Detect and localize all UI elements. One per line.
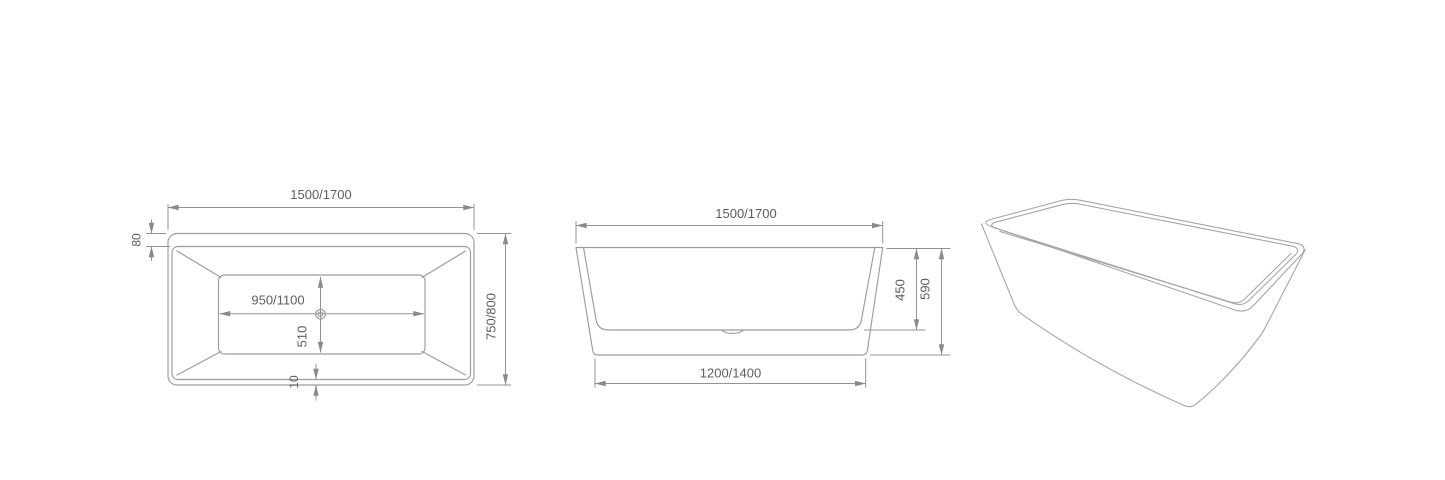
corner-slope-line (177, 352, 221, 376)
perspective-basin-opening-edge (1000, 232, 1291, 303)
dim-label-floor-length: 950/1100 (251, 293, 304, 308)
dim-label-floor-width: 510 (295, 326, 310, 348)
perspective-view (982, 199, 1306, 406)
dim-label-overall-width: 750/800 (484, 293, 499, 340)
front-view: 1500/1700 1200/1400 450 590 (576, 206, 951, 388)
bathtub-technical-drawing: 1500/1700 80 750/800 950/1100 510 10 (0, 0, 1445, 480)
top-view-basin-floor (219, 275, 426, 354)
corner-slope-line (422, 352, 466, 376)
front-view-tub-outline (576, 248, 883, 356)
corner-slope-line (177, 251, 221, 278)
dim-label-inner-depth: 450 (893, 279, 908, 301)
drawing-sheet: 1500/1700 80 750/800 950/1100 510 10 (0, 0, 1445, 480)
dim-label-overall-length: 1500/1700 (290, 187, 351, 202)
extension-lines (576, 221, 883, 244)
top-view-rim-inner-edge (172, 247, 471, 380)
extension-lines (146, 234, 170, 247)
top-view: 1500/1700 80 750/800 950/1100 510 10 (130, 187, 512, 401)
perspective-body-silhouette (982, 224, 1306, 407)
front-view-basin-inner (584, 248, 875, 331)
dim-label-back-rim: 10 (287, 375, 301, 389)
corner-slope-line (422, 251, 466, 278)
dim-label-front-rim: 80 (130, 233, 144, 247)
perspective-rim-inner (992, 203, 1298, 304)
perspective-rim-outer (986, 199, 1304, 311)
dim-label-overall-height: 590 (918, 278, 933, 300)
dim-label-base-length: 1200/1400 (700, 366, 761, 381)
dim-label-rim-length: 1500/1700 (715, 206, 776, 221)
